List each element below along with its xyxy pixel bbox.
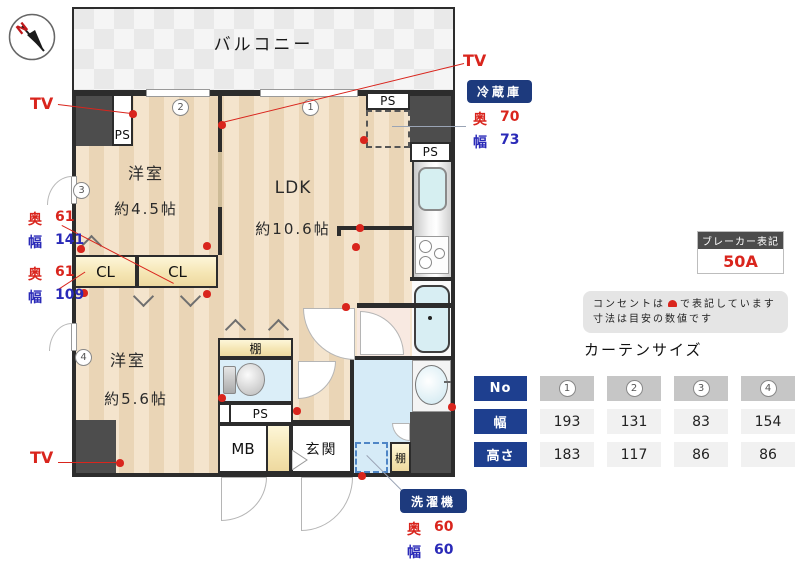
washer-space	[355, 442, 388, 473]
floorplan-page: バルコニー PS PS	[0, 0, 800, 568]
outlet-dot	[203, 290, 211, 298]
table-row-header-height: 高さ	[474, 442, 527, 467]
balcony-label: バルコニー	[214, 30, 314, 55]
tv-label-bottom-left: TV	[30, 448, 53, 467]
tv-label-top-left: TV	[30, 94, 53, 113]
tv-outlet-dot	[116, 459, 124, 467]
closet-lower-dimensions: 奥 61 幅 109	[28, 264, 84, 307]
ldk-size: 約10.6帖	[243, 218, 343, 239]
washer-badge: 洗濯機	[400, 489, 467, 513]
wall-east	[451, 90, 455, 477]
counter-stub-wall	[337, 226, 412, 230]
width-label: 幅	[28, 232, 42, 252]
note-line-2: 寸法は目安の数値です	[593, 312, 778, 327]
outlet-dot	[203, 242, 211, 250]
breaker-title: ブレーカー表記	[698, 232, 783, 249]
bedroom4-name: 洋室	[92, 347, 164, 371]
note-text: で表記しています	[680, 299, 776, 310]
door-swing-south-1	[221, 477, 267, 521]
duct-block-top-right	[410, 92, 451, 142]
outlet-dot	[342, 303, 350, 311]
toilet-tank	[223, 366, 236, 394]
entrance-label: 玄関	[306, 439, 338, 459]
leader-fridge	[392, 126, 466, 127]
column-marker: 2	[626, 380, 643, 397]
width-cell-4: 154	[741, 409, 795, 434]
curtain-size-table: No 1 2 3 4 幅 193 131 83 154 高さ 183 117 8…	[474, 376, 795, 467]
marker-number: 3	[78, 185, 84, 196]
closet-upper-dimensions: 奥 61 幅 141	[28, 209, 84, 252]
width-value: 141	[55, 232, 84, 252]
window-swing-arc	[49, 323, 72, 351]
depth-label: 奥	[473, 109, 487, 129]
duct-block-top-left	[74, 92, 112, 146]
bedroom2-size: 約4.5帖	[98, 198, 194, 219]
marker-number: 2	[177, 102, 183, 113]
stove-burner	[419, 256, 432, 269]
dimension-row: 幅 73	[473, 132, 524, 152]
stove-burner	[434, 248, 445, 259]
stove-burner	[419, 240, 432, 253]
table-row-header-width: 幅	[474, 409, 527, 434]
bedroom2-name: 洋室	[110, 160, 182, 184]
leader-tv-bottom-left	[58, 462, 118, 463]
wall-ldk-bath	[357, 303, 455, 308]
meter-box: MB	[218, 424, 268, 473]
ps-box-top-right: PS	[366, 92, 410, 110]
window-marker-2: 2	[172, 99, 189, 116]
outlet-dot	[218, 394, 226, 402]
bedroom4-size: 約5.6帖	[88, 388, 184, 409]
width-cell-2: 131	[607, 409, 661, 434]
closet-label: CL	[96, 263, 115, 281]
table-row-header-no: No	[474, 376, 527, 401]
depth-value: 61	[55, 209, 79, 229]
ps-label: PS	[115, 128, 131, 142]
marker-number: 1	[307, 102, 313, 113]
ps-divider	[229, 403, 231, 424]
table-col-2: 2	[607, 376, 661, 401]
faucet-icon	[444, 381, 451, 383]
marker-number: 3	[698, 383, 704, 394]
shelf-label: 棚	[249, 340, 261, 357]
compass-icon: N	[8, 13, 56, 61]
width-cell-3: 83	[674, 409, 728, 434]
sliding-door	[218, 152, 222, 207]
outlet-dot	[358, 472, 366, 480]
height-cell-2: 117	[607, 442, 661, 467]
bathtub	[414, 285, 450, 353]
column-marker: 1	[559, 380, 576, 397]
dimension-row: 奥 61	[28, 209, 84, 229]
width-value: 60	[434, 542, 458, 562]
curtain-size-title: カーテンサイズ	[584, 339, 703, 360]
shoe-cabinet	[266, 424, 291, 473]
ps-box-top-left: PS	[112, 94, 133, 146]
tv-label-top-right: TV	[463, 51, 486, 70]
height-cell-1: 183	[540, 442, 594, 467]
dimension-row: 奥 60	[407, 519, 458, 539]
width-label: 幅	[28, 287, 42, 307]
washbasin	[415, 365, 448, 405]
wall-kitchen-bath	[410, 277, 453, 281]
dimension-row: 幅 109	[28, 287, 84, 307]
depth-value: 61	[55, 264, 79, 284]
marker-number: 1	[564, 383, 570, 394]
shelf-label: 棚	[395, 450, 406, 466]
shelf-washroom: 棚	[390, 442, 411, 473]
window-swing-arc	[47, 176, 72, 205]
table-col-1: 1	[540, 376, 594, 401]
marker-number: 2	[631, 383, 637, 394]
fridge-space	[366, 110, 410, 148]
ps-label: PS	[253, 407, 269, 421]
bathtub-drain	[428, 316, 432, 320]
kitchen-sink	[418, 167, 447, 211]
width-value: 109	[55, 287, 84, 307]
ldk-name: LDK	[253, 178, 333, 198]
dimension-row: 幅 141	[28, 232, 84, 252]
door-swing-south-2	[301, 477, 353, 531]
dimension-row: 奥 61	[28, 264, 84, 284]
width-cell-1: 193	[540, 409, 594, 434]
width-label: 幅	[407, 542, 421, 562]
note-text: コンセントは	[593, 299, 665, 310]
height-cell-3: 86	[674, 442, 728, 467]
toilet-bowl	[236, 363, 265, 396]
breaker-value: 50A	[698, 249, 783, 273]
closet-label: CL	[168, 263, 187, 281]
outlet-dot	[129, 110, 137, 118]
ps-label: PS	[380, 94, 396, 108]
window-marker-3: 3	[73, 182, 90, 199]
washer-dimensions: 奥 60 幅 60	[407, 519, 458, 562]
note-box: コンセントはで表記しています 寸法は目安の数値です	[583, 291, 788, 333]
shelf-toilet: 棚	[218, 338, 293, 358]
fridge-badge: 冷蔵庫	[467, 80, 532, 103]
window-marker-4: 4	[75, 349, 92, 366]
height-cell-4: 86	[741, 442, 795, 467]
depth-value: 70	[500, 109, 524, 129]
duct-block-bottom-right	[410, 412, 451, 473]
depth-value: 60	[434, 519, 458, 539]
table-col-3: 3	[674, 376, 728, 401]
outlet-dot	[293, 407, 301, 415]
outlet-icon	[668, 300, 677, 307]
table-col-4: 4	[741, 376, 795, 401]
column-marker: 3	[693, 380, 710, 397]
window-bedroom2	[146, 89, 210, 97]
duct-block-bottom-left	[74, 420, 116, 473]
wall-bath-washroom	[352, 356, 455, 360]
depth-label: 奥	[407, 519, 421, 539]
outlet-dot	[352, 243, 360, 251]
fridge-dimensions: 奥 70 幅 73	[473, 109, 524, 152]
outlet-dot	[448, 403, 456, 411]
entrance-door-mark	[292, 450, 308, 470]
marker-number: 4	[765, 383, 771, 394]
width-label: 幅	[473, 132, 487, 152]
depth-label: 奥	[28, 209, 42, 229]
ps-box-kitchen: PS	[410, 142, 451, 162]
width-value: 73	[500, 132, 524, 152]
dimension-row: 幅 60	[407, 542, 458, 562]
note-line-1: コンセントはで表記しています	[593, 297, 778, 312]
mb-label: MB	[231, 440, 254, 458]
marker-number: 4	[80, 352, 86, 363]
column-marker: 4	[760, 380, 777, 397]
outlet-dot	[356, 224, 364, 232]
breaker-box: ブレーカー表記 50A	[697, 231, 784, 274]
ps-label: PS	[423, 145, 439, 159]
dimension-row: 奥 70	[473, 109, 524, 129]
depth-label: 奥	[28, 264, 42, 284]
outlet-dot	[360, 136, 368, 144]
